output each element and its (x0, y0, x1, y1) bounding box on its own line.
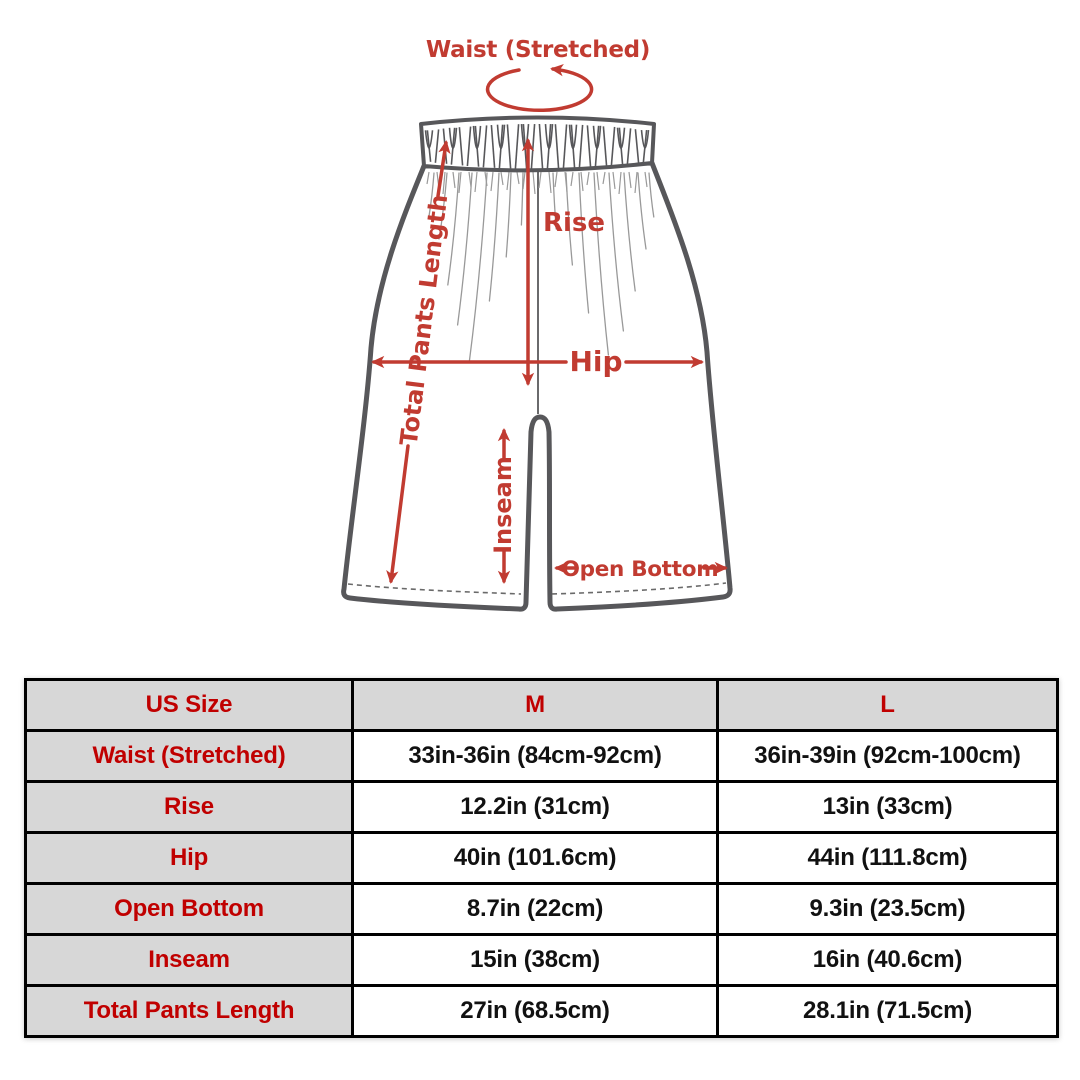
table-row-hip: Hip 40in (101.6cm) 44in (111.8cm) (26, 833, 1058, 884)
hip-value-m: 40in (101.6cm) (353, 833, 718, 884)
open-bottom-value-l: 9.3in (23.5cm) (718, 884, 1058, 935)
total-length-value-m: 27in (68.5cm) (353, 986, 718, 1037)
measurement-diagram: Waist (Stretched) Rise Hip Total Pants L… (0, 0, 1080, 660)
row-label-total-pants-length: Total Pants Length (26, 986, 353, 1037)
table-row-inseam: Inseam 15in (38cm) 16in (40.6cm) (26, 935, 1058, 986)
table-row-waist: Waist (Stretched) 33in-36in (84cm-92cm) … (26, 731, 1058, 782)
table-header-row: US Size M L (26, 680, 1058, 731)
row-label-hip: Hip (26, 833, 353, 884)
waist-stretched-label: Waist (Stretched) (426, 37, 650, 63)
open-bottom-label: Open Bottom (562, 557, 719, 582)
row-label-inseam: Inseam (26, 935, 353, 986)
column-header-l: L (718, 680, 1058, 731)
hip-label: Hip (569, 345, 622, 378)
waist-value-l: 36in-39in (92cm-100cm) (718, 731, 1058, 782)
total-length-value-l: 28.1in (71.5cm) (718, 986, 1058, 1037)
open-bottom-value-m: 8.7in (22cm) (353, 884, 718, 935)
size-chart-table: US Size M L Waist (Stretched) 33in-36in … (24, 678, 1059, 1038)
rise-value-l: 13in (33cm) (718, 782, 1058, 833)
row-label-waist: Waist (Stretched) (26, 731, 353, 782)
rise-label: Rise (543, 208, 605, 238)
table-row-rise: Rise 12.2in (31cm) 13in (33cm) (26, 782, 1058, 833)
inseam-value-l: 16in (40.6cm) (718, 935, 1058, 986)
rise-value-m: 12.2in (31cm) (353, 782, 718, 833)
hip-value-l: 44in (111.8cm) (718, 833, 1058, 884)
inseam-label: Inseam (489, 456, 517, 554)
table-row-total-pants-length: Total Pants Length 27in (68.5cm) 28.1in … (26, 986, 1058, 1037)
row-label-rise: Rise (26, 782, 353, 833)
shorts-illustration: Waist (Stretched) Rise Hip Total Pants L… (0, 0, 1080, 660)
row-label-open-bottom: Open Bottom (26, 884, 353, 935)
column-header-m: M (353, 680, 718, 731)
column-header-us-size: US Size (26, 680, 353, 731)
table-row-open-bottom: Open Bottom 8.7in (22cm) 9.3in (23.5cm) (26, 884, 1058, 935)
waist-circular-arrow (488, 69, 592, 110)
waist-value-m: 33in-36in (84cm-92cm) (353, 731, 718, 782)
inseam-value-m: 15in (38cm) (353, 935, 718, 986)
